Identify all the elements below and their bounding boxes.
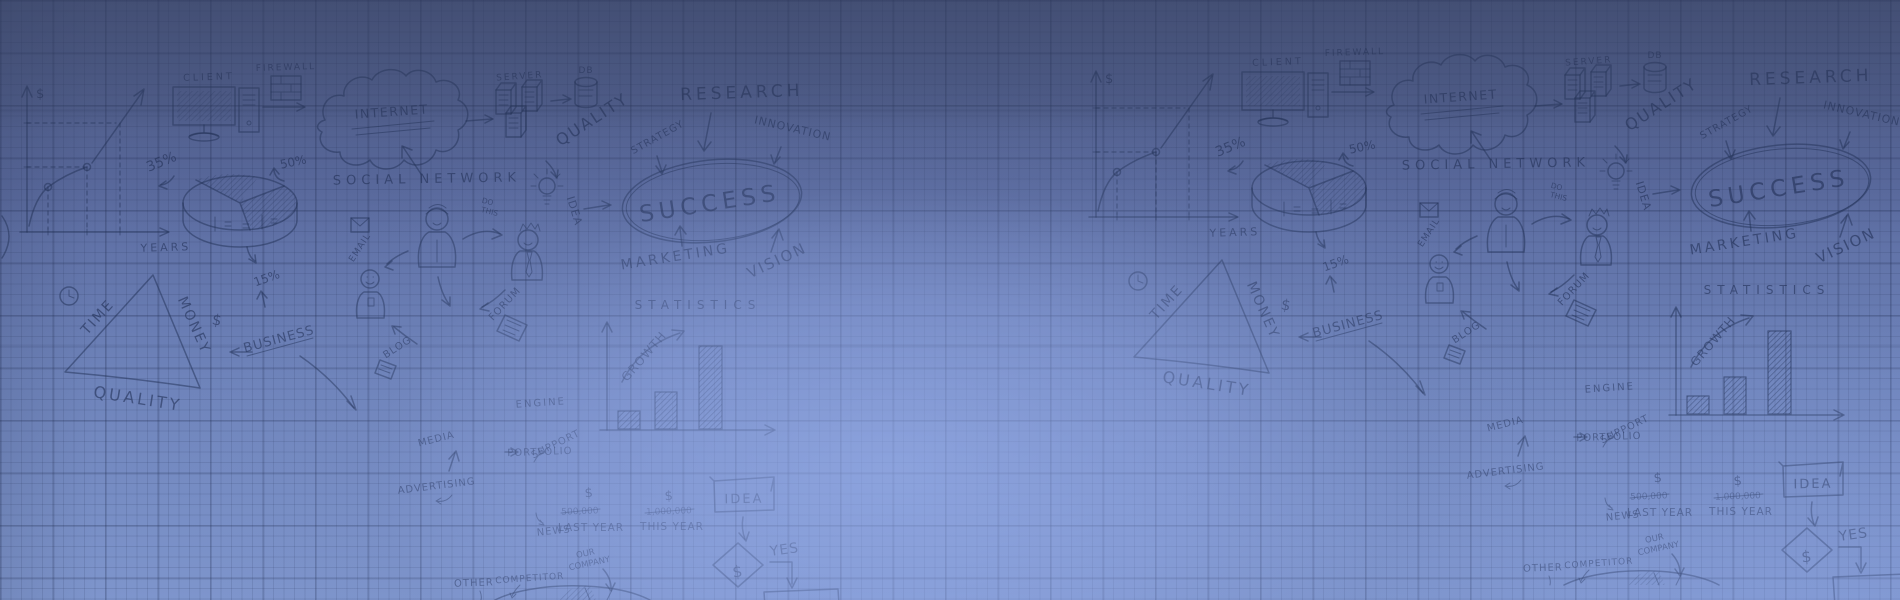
edge-arc	[2, 216, 9, 258]
graph-paper-grid	[0, 0, 1900, 600]
center-glow-overlay	[0, 0, 1900, 600]
doodle-layer: $ YEARS 35% 50% CLIENT	[0, 0, 1900, 600]
doodle-tile-2	[1089, 47, 1900, 600]
doodle-tile-1	[20, 62, 840, 600]
hero-banner-background: $ YEARS 35% 50% CLIENT	[0, 0, 1900, 600]
top-shade-overlay	[0, 0, 1900, 600]
